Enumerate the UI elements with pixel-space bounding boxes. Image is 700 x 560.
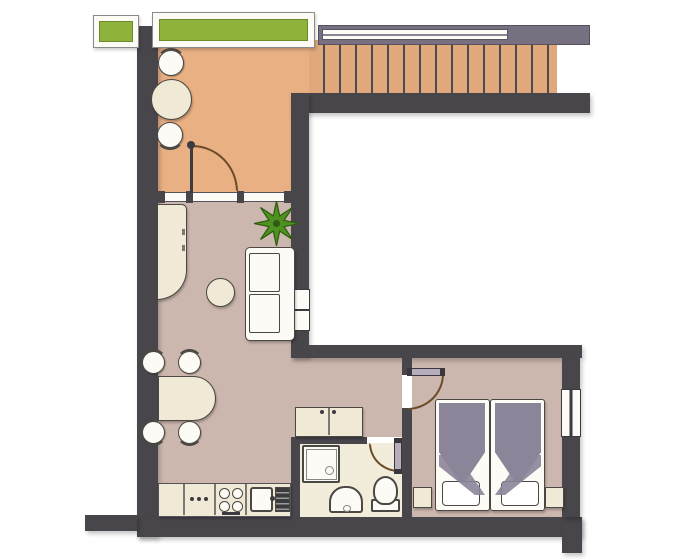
appliance-knob-1	[190, 497, 194, 501]
counter-divider-2	[214, 484, 216, 515]
washbasin	[329, 486, 363, 513]
partition-post-3	[237, 191, 244, 203]
cooktop-controls	[222, 512, 240, 515]
wall-bathroom-west	[291, 437, 300, 517]
nightstand-right	[545, 487, 564, 508]
kitchen-counter	[158, 483, 291, 517]
burner-3	[219, 501, 230, 512]
void-area	[309, 113, 562, 345]
dining-chair-3	[142, 421, 165, 444]
wall-bedroom-west	[402, 408, 412, 517]
planter-box-top	[152, 12, 315, 48]
corner-counter	[157, 204, 187, 300]
dining-chair-4	[178, 421, 201, 444]
appliance-knob-3	[204, 497, 208, 501]
wall-south-west-stub	[85, 515, 137, 531]
bed-1	[435, 399, 490, 511]
washbasin-drain	[343, 505, 351, 512]
burner-2	[232, 488, 243, 499]
dining-chair-1	[142, 351, 165, 374]
toilet-bowl	[373, 476, 398, 505]
dining-chair-2	[178, 351, 201, 374]
wall-under-stairs	[291, 93, 590, 113]
counter-divider-3	[245, 484, 247, 515]
sofa	[245, 247, 295, 341]
nightstand-left	[413, 487, 432, 508]
shower-tray	[302, 445, 340, 483]
bedroom-window	[561, 389, 581, 437]
cabinet-handle-1	[320, 410, 324, 414]
planter-green-top	[159, 19, 308, 41]
wall-bedroom-north	[291, 345, 582, 358]
sofa-cushion-1	[249, 253, 280, 292]
stair-handrail	[322, 29, 508, 40]
cabinet-divider	[328, 408, 330, 435]
sofa-cushion-2	[249, 294, 280, 333]
floor-plan	[0, 0, 700, 560]
potted-plant	[254, 201, 299, 246]
hall-chair-north	[158, 50, 184, 76]
burner-1	[219, 488, 230, 499]
wall-south	[137, 517, 582, 537]
wall-bathroom-north	[291, 437, 367, 444]
counter-divider-1	[183, 484, 185, 515]
partition-post-1	[158, 191, 165, 203]
drainboard	[275, 487, 290, 512]
counter-handle-1	[182, 229, 185, 235]
coffee-table	[206, 278, 235, 307]
plant-center	[273, 220, 280, 227]
appliance-knob-2	[197, 497, 201, 501]
hall-door-leaf	[190, 145, 193, 193]
planter-green-left	[99, 21, 133, 42]
hall-chair-south	[157, 122, 183, 148]
hall-door-knob	[187, 141, 195, 149]
counter-handle-2	[182, 245, 185, 251]
bathroom-door-leaf	[394, 438, 402, 474]
wall-south-east-block	[562, 517, 582, 553]
planter-box-left	[93, 15, 139, 48]
dining-table	[158, 376, 216, 421]
wall-bedroom-east	[562, 358, 580, 517]
sideboard-cabinet	[295, 407, 363, 437]
stair-treads	[309, 40, 557, 97]
bed-2	[490, 399, 545, 511]
hall-bistro-table	[151, 79, 192, 120]
bedroom-door-leaf	[407, 368, 445, 376]
cabinet-handle-2	[332, 410, 336, 414]
shower-drain	[325, 466, 334, 475]
burner-4	[232, 501, 243, 512]
shower-inner-edge	[306, 449, 337, 480]
